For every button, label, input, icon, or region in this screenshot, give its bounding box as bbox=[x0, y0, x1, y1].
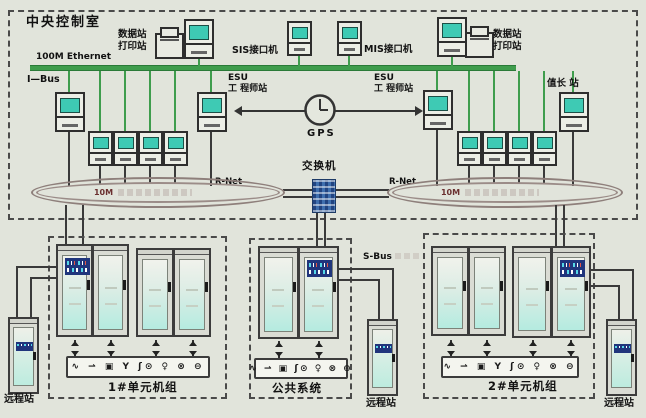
cabinet-cap bbox=[470, 248, 504, 253]
bus-drop-line bbox=[174, 71, 176, 131]
gps-clock-icon bbox=[303, 93, 337, 127]
operator-workstation-icon bbox=[457, 131, 482, 166]
bus-drop-line bbox=[99, 71, 101, 131]
monitor-screen bbox=[564, 98, 584, 113]
controller-module-icon bbox=[614, 344, 631, 353]
computer-base bbox=[138, 154, 163, 166]
cabinet bbox=[512, 246, 552, 338]
computer-base bbox=[482, 154, 507, 166]
monitor-screen bbox=[143, 137, 159, 149]
cabinet-cap bbox=[300, 248, 337, 253]
monitor-screen bbox=[537, 137, 553, 149]
monitor-icon bbox=[287, 21, 312, 44]
monitor-screen bbox=[428, 96, 448, 111]
ring-label-smudge bbox=[118, 189, 192, 196]
monitor-screen bbox=[442, 23, 462, 38]
ethernet-bus bbox=[30, 65, 516, 71]
cabinet-handle bbox=[546, 281, 549, 291]
esu-engineer-workstation-icon bbox=[197, 92, 227, 132]
unit1-label: 1#单元机组 bbox=[108, 380, 178, 394]
cabinet-screen bbox=[62, 255, 87, 330]
control-room-title: 中央控制室 bbox=[26, 15, 101, 31]
ring-label-smudge bbox=[465, 189, 539, 196]
computer-base bbox=[532, 154, 557, 166]
remote-link-line bbox=[30, 277, 32, 317]
cabinet-handle bbox=[123, 280, 126, 290]
io-dashed-arrow bbox=[532, 340, 534, 357]
data-station-text: 数据站 bbox=[118, 29, 147, 40]
shift-leader-label: 值长 站 bbox=[547, 78, 579, 90]
cabinet bbox=[173, 248, 211, 337]
monitor-icon bbox=[507, 131, 532, 154]
cabinet-cap bbox=[10, 319, 37, 324]
operator-workstation-icon bbox=[88, 131, 113, 166]
cabinet-handle bbox=[205, 282, 208, 292]
esu-text: ESU bbox=[374, 73, 394, 83]
monitor-screen bbox=[202, 98, 222, 113]
remote-station-label: 远程站 bbox=[604, 398, 634, 411]
field-instrument-strip: ∿ ⇀ ▣ Y ʃ⊙ ♀ ⊗ ⊖ bbox=[441, 356, 579, 378]
cabinet-screen bbox=[372, 329, 393, 388]
remote-station-label: 远程站 bbox=[4, 394, 34, 407]
cabinet-cap bbox=[553, 248, 589, 253]
bus-drop-line bbox=[124, 71, 126, 131]
computer-base bbox=[457, 154, 482, 166]
cabinet-cap bbox=[94, 246, 127, 251]
monitor-icon bbox=[457, 131, 482, 154]
sbus-text: S-Bus bbox=[363, 252, 392, 262]
cabinet-handle bbox=[333, 282, 336, 292]
remote-station-cabinet bbox=[367, 319, 398, 396]
cabinet-cap bbox=[433, 248, 467, 253]
rnet-line bbox=[283, 189, 389, 191]
cabinet-screen bbox=[264, 257, 293, 332]
esu-text: ESU bbox=[228, 73, 248, 83]
sis-workstation-icon bbox=[287, 21, 312, 56]
monitor-icon bbox=[437, 17, 467, 43]
esu-right-label: ESU 工 程师站 bbox=[374, 73, 413, 96]
cabinet bbox=[431, 246, 469, 336]
connector-line bbox=[572, 132, 574, 186]
remote-station-cabinet bbox=[606, 319, 637, 396]
computer-base bbox=[113, 154, 138, 166]
operator-workstation-icon bbox=[482, 131, 507, 166]
monitor-icon bbox=[197, 92, 227, 118]
monitor-screen bbox=[487, 137, 503, 149]
cabinet-handle bbox=[500, 281, 503, 291]
remote-link-line bbox=[591, 285, 620, 287]
ring-network-right: 10M bbox=[387, 177, 623, 208]
bus-drop-line bbox=[348, 56, 350, 66]
cabinet-handle bbox=[463, 281, 466, 291]
computer-base bbox=[287, 44, 312, 56]
io-dashed-arrow bbox=[450, 340, 452, 357]
cabinet-cap bbox=[514, 248, 550, 253]
sbus-smudge bbox=[395, 253, 421, 259]
cabinet-screen bbox=[13, 327, 34, 386]
instrument-icons: ∿ ⇀ ▣ Y ʃ⊙ ♀ ⊗ ⊖ bbox=[444, 362, 577, 372]
cabinet-handle bbox=[392, 354, 395, 362]
data-station-workstation-icon bbox=[184, 19, 214, 59]
connector-line bbox=[68, 132, 70, 186]
mis-label: MIS接口机 bbox=[364, 44, 412, 56]
ring-speed-text: 10M bbox=[441, 188, 460, 197]
cabinet-handle bbox=[168, 282, 171, 292]
controller-module-icon bbox=[65, 258, 90, 275]
cabinet-handle bbox=[631, 354, 634, 362]
io-dashed-arrow bbox=[570, 340, 572, 357]
monitor-icon bbox=[113, 131, 138, 154]
shift-leader-workstation-icon bbox=[559, 92, 589, 132]
computer-base bbox=[88, 154, 113, 166]
bus-drop-line bbox=[518, 71, 520, 131]
bus-drop-line bbox=[68, 71, 70, 92]
monitor-screen bbox=[93, 137, 109, 149]
remote-station-cabinet bbox=[8, 317, 39, 394]
monitor-screen bbox=[189, 25, 209, 40]
field-instrument-strip: ∿ ⇀ ▣ Y ʃ⊙ ♀ ⊗ ⊖ bbox=[66, 356, 210, 378]
engineer-station-text: 工 程师站 bbox=[228, 84, 267, 94]
monitor-icon bbox=[184, 19, 214, 45]
cabinet bbox=[136, 248, 174, 337]
operator-workstation-icon bbox=[507, 131, 532, 166]
remote-link-line bbox=[618, 285, 620, 319]
data-station-text: 数据站 bbox=[493, 29, 522, 40]
cabinet-cap bbox=[369, 321, 396, 326]
monitor-icon bbox=[163, 131, 188, 154]
controller-cabinet bbox=[551, 246, 591, 338]
ring-speed-text: 10M bbox=[94, 188, 113, 197]
remote-link-line bbox=[16, 266, 57, 268]
sbus-line bbox=[392, 268, 394, 321]
monitor-icon bbox=[532, 131, 557, 154]
controller-module-icon bbox=[375, 344, 392, 353]
monitor-screen bbox=[462, 137, 478, 149]
sbus-line bbox=[339, 268, 394, 270]
monitor-screen bbox=[512, 137, 528, 149]
cabinet-handle bbox=[585, 281, 588, 291]
cabinet-screen bbox=[557, 257, 585, 331]
switch-label: 交换机 bbox=[302, 160, 337, 173]
computer-base bbox=[423, 116, 453, 130]
instrument-icons: ∿ ⇀ ▣ ʃ⊙ ♀ ⊗ ⊖ bbox=[249, 364, 352, 374]
cabinet-cap bbox=[138, 250, 172, 255]
ibus-label: I—Bus bbox=[27, 74, 60, 86]
cabinet bbox=[468, 246, 506, 336]
network-switch-icon bbox=[312, 179, 336, 213]
monitor-icon bbox=[88, 131, 113, 154]
monitor-screen bbox=[292, 27, 308, 39]
bus-drop-line bbox=[451, 57, 453, 66]
computer-base bbox=[197, 118, 227, 132]
io-dashed-arrow bbox=[110, 340, 112, 357]
sbus-line bbox=[378, 279, 380, 321]
computer-base bbox=[55, 118, 85, 132]
operator-workstation-icon bbox=[532, 131, 557, 166]
data-print-left-label: 数据站 打印站 bbox=[118, 29, 147, 53]
monitor-screen bbox=[60, 98, 80, 113]
cabinet-screen bbox=[518, 257, 546, 331]
ring-network-label: 10M bbox=[33, 179, 283, 206]
ethernet-label: 100M Ethernet bbox=[36, 52, 111, 63]
data-print-right-label: 数据站 打印站 bbox=[493, 29, 522, 53]
bus-drop-line bbox=[198, 59, 200, 66]
sis-label: SIS接口机 bbox=[232, 45, 278, 57]
bus-drop-line bbox=[298, 56, 300, 66]
connector-line bbox=[436, 130, 438, 186]
monitor-icon bbox=[559, 92, 589, 118]
io-dashed-arrow bbox=[192, 340, 194, 357]
monitor-screen bbox=[342, 27, 358, 39]
gps-label: GPS bbox=[307, 128, 336, 141]
cabinet-screen bbox=[474, 257, 500, 329]
ring-network-left: 10M bbox=[31, 177, 285, 208]
computer-base bbox=[507, 154, 532, 166]
bus-drop-line bbox=[468, 71, 470, 131]
operator-workstation-icon bbox=[138, 131, 163, 166]
cabinet-cap bbox=[175, 250, 209, 255]
io-dashed-arrow bbox=[278, 341, 280, 358]
field-instrument-strip: ∿ ⇀ ▣ ʃ⊙ ♀ ⊗ ⊖ bbox=[254, 358, 348, 379]
remote-station-label: 远程站 bbox=[366, 398, 396, 411]
monitor-screen bbox=[168, 137, 184, 149]
print-station-text: 打印站 bbox=[493, 41, 522, 52]
instrument-icons: ∿ ⇀ ▣ Y ʃ⊙ ♀ ⊗ ⊖ bbox=[72, 362, 205, 372]
cabinet-cap bbox=[608, 321, 635, 326]
cabinet-screen bbox=[611, 329, 632, 388]
cabinet-screen bbox=[142, 259, 168, 330]
cabinet-screen bbox=[437, 257, 463, 329]
printer-icon bbox=[155, 33, 184, 59]
printer-icon bbox=[465, 32, 494, 58]
computer-base bbox=[437, 43, 467, 57]
io-dashed-arrow bbox=[486, 340, 488, 357]
bus-drop-line bbox=[493, 71, 495, 131]
cabinet bbox=[258, 246, 299, 339]
bus-drop-line bbox=[149, 71, 151, 131]
remote-link-line bbox=[632, 269, 634, 319]
dcs-architecture-diagram: 中央控制室 100M Ethernet I—Bus 数据站 打印站 SIS接口机… bbox=[0, 0, 646, 418]
remote-link-line bbox=[16, 266, 18, 317]
monitor-icon bbox=[55, 92, 85, 118]
cabinet-cap bbox=[58, 246, 91, 251]
print-station-text: 打印站 bbox=[118, 41, 147, 52]
cabinet-cap bbox=[260, 248, 297, 253]
operator-workstation-icon bbox=[55, 92, 85, 132]
operator-workstation-icon bbox=[113, 131, 138, 166]
bus-drop-line bbox=[210, 71, 212, 92]
cabinet-screen bbox=[98, 255, 123, 330]
common-system-label: 公共系统 bbox=[272, 381, 322, 395]
sbus-line bbox=[339, 279, 380, 281]
bus-drop-line bbox=[436, 71, 438, 90]
computer-base bbox=[559, 118, 589, 132]
cabinet-screen bbox=[304, 257, 333, 332]
unit2-label: 2#单元机组 bbox=[488, 379, 558, 393]
monitor-icon bbox=[482, 131, 507, 154]
operator-workstation-icon bbox=[163, 131, 188, 166]
io-dashed-arrow bbox=[74, 340, 76, 357]
sbus-label: S-Bus bbox=[363, 252, 421, 263]
monitor-icon bbox=[337, 21, 362, 44]
engineer-station-text: 工 程师站 bbox=[374, 84, 413, 94]
monitor-icon bbox=[138, 131, 163, 154]
remote-link-line bbox=[30, 277, 57, 279]
cabinet-screen bbox=[179, 259, 205, 330]
mis-workstation-icon bbox=[337, 21, 362, 56]
io-dashed-arrow bbox=[318, 341, 320, 358]
computer-base bbox=[337, 44, 362, 56]
computer-base bbox=[163, 154, 188, 166]
cabinet bbox=[92, 244, 129, 337]
controller-module-icon bbox=[560, 260, 585, 277]
controller-module-icon bbox=[307, 260, 332, 277]
cabinet-handle bbox=[293, 282, 296, 292]
cabinet-handle bbox=[87, 280, 90, 290]
data-station-workstation-icon bbox=[437, 17, 467, 57]
computer-base bbox=[184, 45, 214, 59]
cabinet-handle bbox=[33, 352, 36, 360]
controller-cabinet bbox=[298, 246, 339, 339]
controller-module-icon bbox=[16, 342, 33, 351]
ring-network-label: 10M bbox=[389, 179, 621, 206]
remote-link-line bbox=[591, 269, 634, 271]
rnet-line bbox=[283, 196, 389, 198]
esu-left-label: ESU 工 程师站 bbox=[228, 73, 267, 96]
bus-drop-line bbox=[543, 71, 545, 131]
monitor-screen bbox=[118, 137, 134, 149]
controller-cabinet bbox=[56, 244, 93, 337]
io-dashed-arrow bbox=[155, 340, 157, 357]
